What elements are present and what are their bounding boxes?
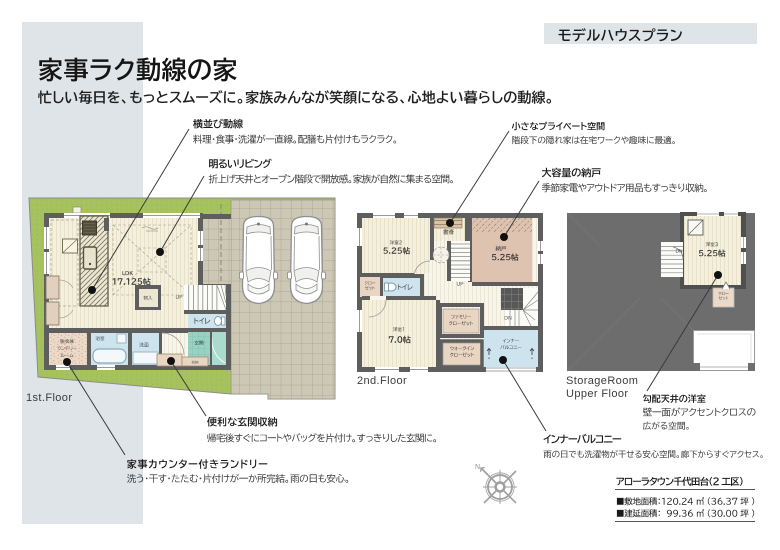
svg-text:N: N (475, 464, 480, 471)
